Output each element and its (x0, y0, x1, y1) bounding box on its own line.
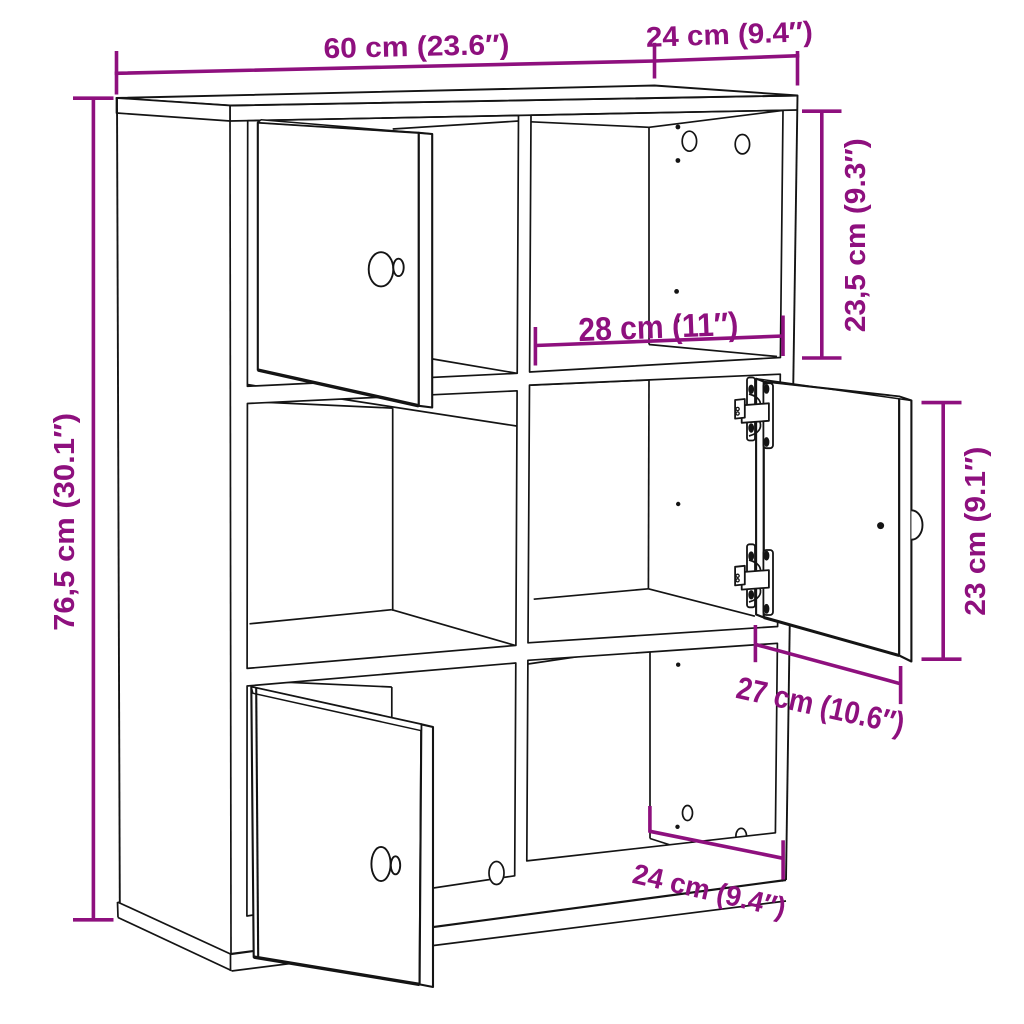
svg-text:24 cm (9.4″): 24 cm (9.4″) (645, 16, 813, 54)
svg-text:60 cm (23.6″): 60 cm (23.6″) (323, 29, 510, 65)
svg-text:28 cm (11″): 28 cm (11″) (578, 305, 739, 348)
svg-text:76,5 cm (30.1″): 76,5 cm (30.1″) (49, 413, 81, 631)
svg-text:23 cm (9.1″): 23 cm (9.1″) (960, 447, 992, 616)
svg-text:23,5 cm (9.3″): 23,5 cm (9.3″) (840, 138, 872, 332)
